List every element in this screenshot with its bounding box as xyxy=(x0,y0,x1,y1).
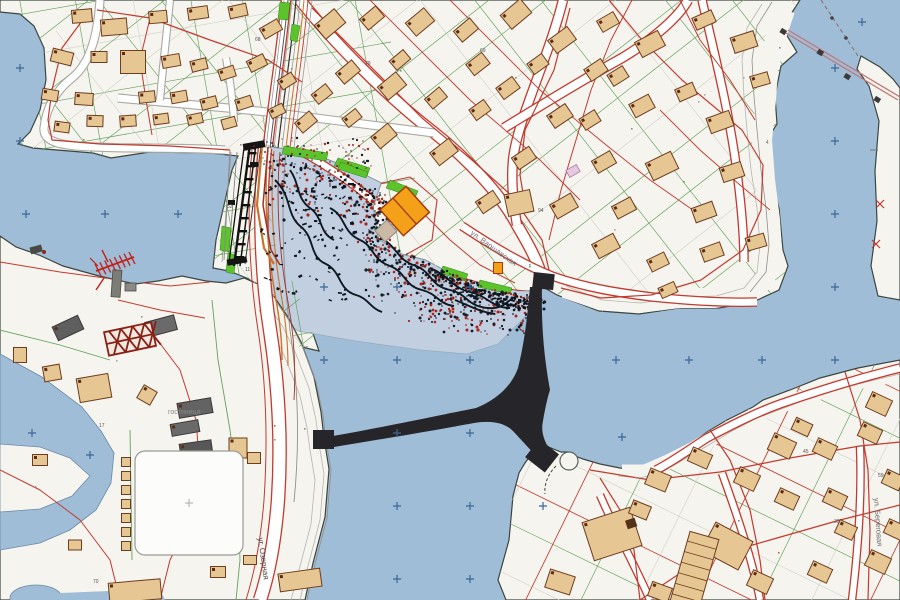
svg-text:45: 45 xyxy=(803,449,809,455)
svg-text:52: 52 xyxy=(227,204,233,210)
svg-text:79: 79 xyxy=(365,61,371,67)
svg-text:11: 11 xyxy=(245,267,250,273)
svg-text:68: 68 xyxy=(255,37,261,43)
svg-text:59: 59 xyxy=(878,473,884,479)
svg-text:94: 94 xyxy=(538,208,544,214)
svg-text:70: 70 xyxy=(93,579,99,585)
svg-text:17: 17 xyxy=(99,423,105,429)
svg-text:69: 69 xyxy=(480,48,486,54)
svg-text:гостиница: гостиница xyxy=(168,409,201,416)
svg-text:33: 33 xyxy=(834,519,840,525)
